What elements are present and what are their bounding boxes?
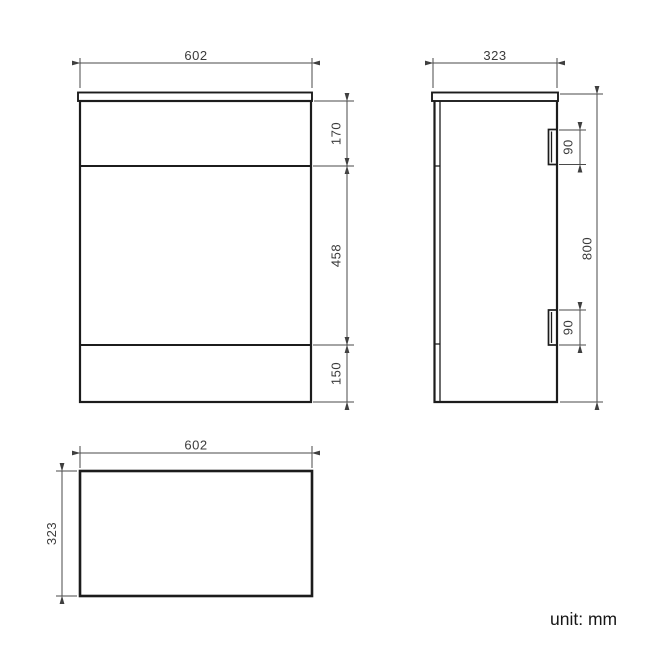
top-hinge-dimension: 90 [559,130,586,165]
side-countertop [432,93,558,102]
plan-outline [80,471,312,596]
front-width-dimension: 602 [80,48,312,88]
front-view [78,93,312,403]
top-hinge [549,130,558,165]
front-bottom-section-label: 150 [329,362,344,385]
bottom-hinge-dimension: 90 [559,310,586,345]
front-cabinet-body [80,101,311,402]
technical-drawing: 602 170 458 150 323 800 [0,0,650,650]
front-top-section-label: 170 [329,122,344,145]
drawing-canvas: 602 170 458 150 323 800 [0,0,650,650]
front-countertop [78,93,312,102]
top-hinge-label: 90 [561,139,576,154]
side-view [432,93,558,403]
bottom-hinge-label: 90 [561,320,576,335]
plan-view [80,471,312,596]
front-width-label: 602 [184,48,207,63]
plan-depth-dimension: 323 [44,471,77,596]
plan-depth-label: 323 [44,522,59,545]
side-cabinet-body [435,101,558,402]
front-middle-section-label: 458 [329,244,344,267]
side-depth-dimension: 323 [433,48,557,88]
plan-width-dimension: 602 [80,438,312,469]
side-height-label: 800 [580,237,595,260]
front-height-dimensions: 170 458 150 [313,101,354,402]
side-depth-label: 323 [483,48,506,63]
bottom-hinge [549,310,558,345]
unit-note: unit: mm [550,609,617,629]
plan-width-label: 602 [184,438,207,453]
